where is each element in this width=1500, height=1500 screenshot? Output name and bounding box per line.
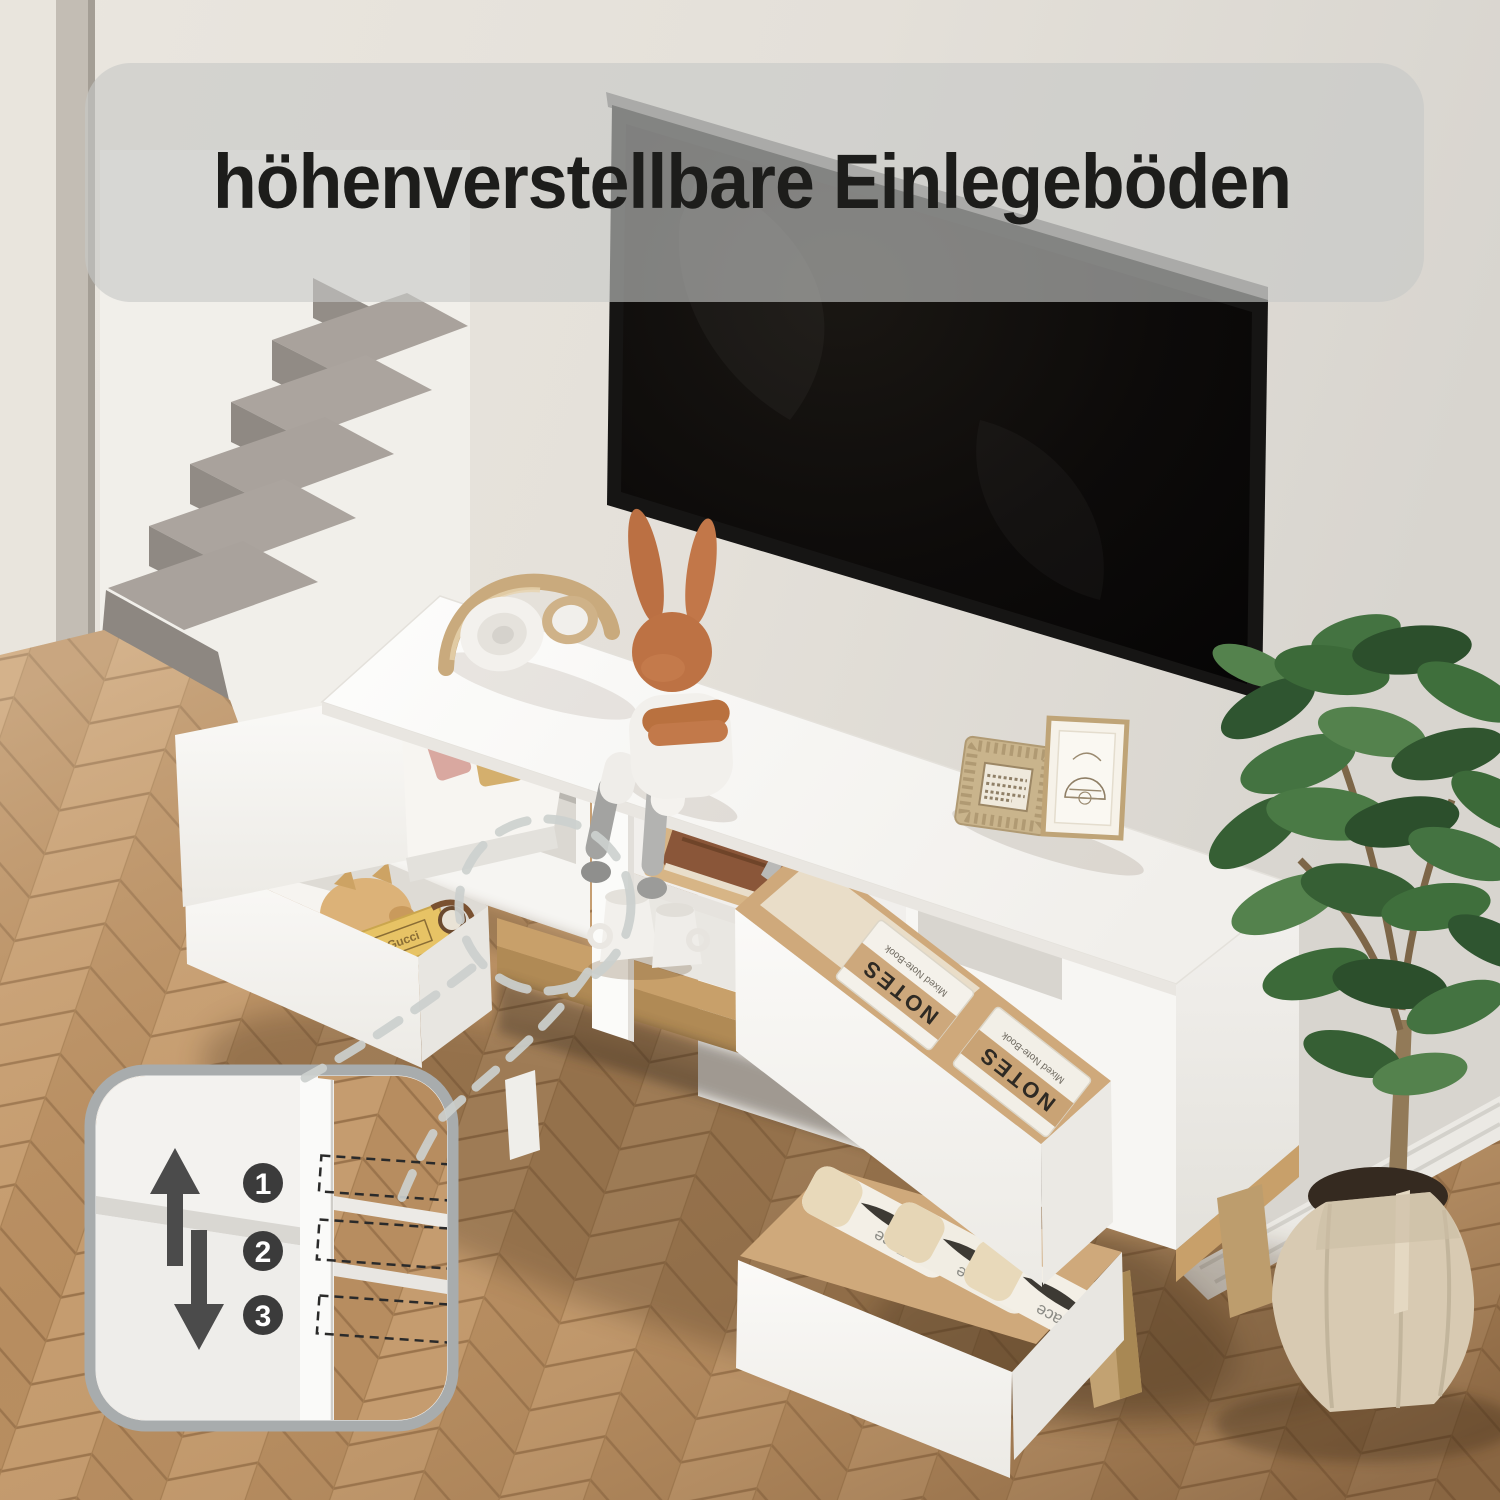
product-image: Gucci xyxy=(0,0,1500,1500)
title-banner: höhenverstellbare Einlegeböden xyxy=(85,63,1424,302)
bunny-foot-left xyxy=(581,861,611,883)
sunburst-frame-mat xyxy=(979,763,1032,811)
scene: Gucci xyxy=(0,0,1500,1500)
left-wall-panel xyxy=(0,0,56,680)
shelf-adjustment-inset: 1 2 3 xyxy=(90,1070,453,1426)
position-1-badge: 1 xyxy=(243,1163,283,1203)
position-3-badge: 3 xyxy=(243,1295,283,1335)
position-2-badge: 2 xyxy=(243,1231,283,1271)
picture-frame-print xyxy=(1043,718,1127,838)
mug-right-base xyxy=(656,903,694,917)
cabinet-leg-left xyxy=(505,1070,540,1160)
position-2-label: 2 xyxy=(255,1236,272,1269)
position-3-label: 3 xyxy=(255,1300,272,1333)
bunny-muzzle xyxy=(641,654,685,682)
banner-title: höhenverstellbare Einlegeböden xyxy=(213,139,1291,225)
position-1-label: 1 xyxy=(255,1168,272,1201)
bunny-foot-right xyxy=(637,877,667,899)
mug-right-body xyxy=(652,908,702,968)
